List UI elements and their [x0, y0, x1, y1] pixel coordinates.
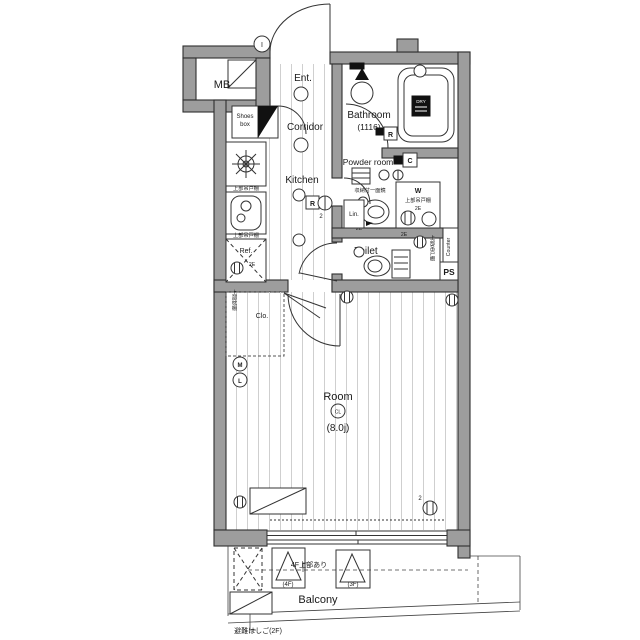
paper-holder-icon	[354, 247, 364, 257]
wall-room-top-right	[332, 280, 458, 292]
shower-head-icon	[355, 68, 369, 80]
kitchen-upper-cabinet-note: 上部吊戸棚	[233, 184, 259, 192]
unit-3f-label: (3F)	[348, 582, 359, 588]
control-badge-label: C	[407, 158, 412, 165]
powder-room-label: Powder room	[343, 157, 394, 167]
counter-ps: Counter PS	[440, 228, 458, 280]
remote-badge-label: R	[388, 132, 393, 139]
floor-plan-drawing: I Ent. MB Shoes box Corridor Kitchen 上部吊…	[0, 0, 640, 640]
wall-left	[214, 100, 226, 530]
entrance-label: Ent.	[294, 73, 312, 84]
closet-label: Clo.	[256, 313, 269, 320]
ps-label: PS	[443, 267, 455, 277]
washer-upper-cabinet-note: 上部吊戸棚	[405, 196, 431, 204]
intercom-label: I	[261, 42, 263, 49]
toilet-tank	[392, 250, 410, 278]
meter-l-label: L	[238, 379, 242, 385]
unit-3f-triangle	[340, 554, 365, 582]
downlight-icon	[293, 234, 305, 246]
kitchen-label: Kitchen	[285, 175, 318, 186]
downlight-icon	[379, 170, 389, 180]
wall-bottom-right	[447, 530, 470, 546]
bathroom-label: Bathroom	[347, 110, 390, 121]
shoes-box-label2: box	[240, 122, 250, 128]
vent-fan-icon	[232, 150, 260, 178]
counter-label: Counter	[446, 238, 452, 257]
wall-bathroom-powder	[382, 148, 458, 158]
outlet-icon	[446, 294, 458, 306]
entry-door-arc	[270, 4, 330, 52]
mb-label: MB	[214, 79, 231, 91]
outlet-icon	[234, 496, 246, 508]
closet-shelf-note: 上部枕棚	[231, 288, 237, 312]
tub-faucet-icon	[414, 65, 426, 77]
toilet-upper-cabinet-note: 上部吊戸棚	[429, 234, 435, 263]
powder-room: Powder room C 収納付一面鏡 2E Lin. W 上部吊戸棚 2E	[343, 153, 440, 232]
sliding-window	[267, 531, 447, 544]
switch-icon	[394, 156, 402, 164]
bathroom: DRY Bathroom (1116) R	[346, 63, 454, 148]
cabinet-icon	[352, 168, 370, 184]
downlight-icon	[294, 87, 308, 101]
outlet-icon	[401, 211, 415, 225]
linen-label: Lin.	[349, 212, 359, 218]
wall-bathroom-left	[332, 64, 342, 178]
switch-icon	[376, 128, 383, 135]
kitchen-sink	[226, 192, 266, 234]
washer-outlet-label: 2E	[415, 206, 422, 212]
outlet-icon	[423, 501, 437, 515]
unit-4f-label: (4F)	[283, 582, 294, 588]
wall-bottom-left	[214, 530, 267, 546]
shoes-box-label1: Shoes	[236, 114, 253, 120]
ref-outlet-label: 2E	[249, 262, 256, 268]
outlet-icon	[231, 262, 243, 274]
washer-label: W	[415, 188, 422, 195]
dryer-badge-label: DRY	[416, 99, 426, 104]
washer-drain-icon	[422, 212, 436, 226]
wall-right	[458, 52, 470, 558]
shower-circle-icon	[351, 82, 373, 104]
wall-mb-left	[183, 58, 196, 100]
ref-upper-cabinet-note: 上部吊戸棚	[233, 231, 259, 239]
toilet-outlet-label: 2E	[401, 232, 408, 238]
corridor-label: Corridor	[287, 122, 324, 133]
escape-ladder-note: 避難はしご(2F)	[234, 626, 282, 635]
room-size: (8.0j)	[327, 423, 350, 434]
water-heater-icon	[350, 63, 364, 69]
downlight-icon	[293, 189, 305, 201]
ceiling-light-label: CL	[335, 410, 342, 416]
mirror-cabinet-note: 収納付一面鏡	[354, 186, 386, 194]
outlet-icon	[341, 291, 353, 303]
mb-door-diagonal	[228, 60, 256, 88]
downlight-icon	[294, 138, 308, 152]
room-label: Room	[323, 391, 352, 403]
meter-m-label: M	[238, 363, 243, 369]
floor-plan-page: I Ent. MB Shoes box Corridor Kitchen 上部吊…	[0, 0, 640, 640]
outlet-icon	[414, 236, 426, 248]
ref-label: Ref.	[240, 248, 253, 255]
wall-powder-toilet	[332, 228, 443, 238]
wall-top-pillar	[397, 39, 418, 52]
balcony-label: Balcony	[298, 594, 338, 606]
remote-badge-label: R	[310, 201, 315, 208]
wall-top	[330, 52, 470, 64]
wall-mb-right	[256, 58, 270, 112]
balcony: 避難はしご(2F) (4F) (3F) 4F上部あり Balcony	[228, 546, 520, 635]
upper-floor-note: 4F上部あり	[291, 560, 327, 569]
